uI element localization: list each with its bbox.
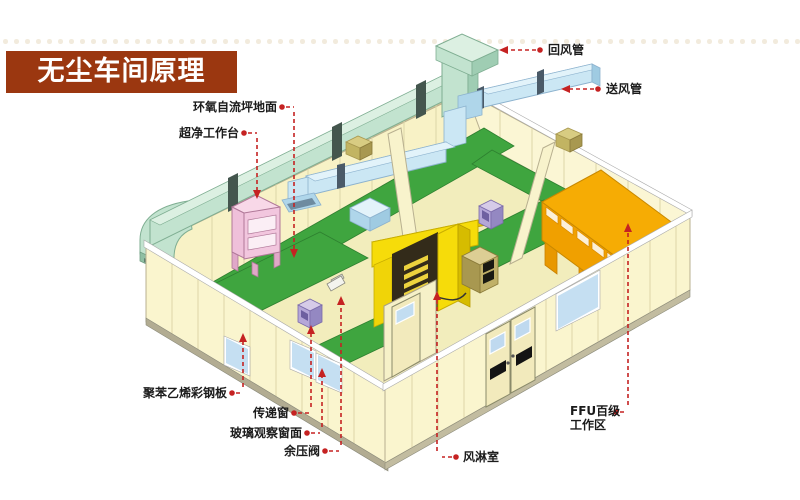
- label-return-duct: 回风管: [548, 42, 584, 57]
- storage-cabinet: [462, 247, 498, 293]
- duct-joint-band: [332, 122, 342, 161]
- label-glass-window: 玻璃观察窗面: [230, 425, 302, 440]
- label-ffu-line2: 工作区: [570, 417, 606, 432]
- cleanroom-principle-illustration: 无尘车间原理: [0, 0, 800, 500]
- pass-box-inner: [479, 200, 503, 229]
- label-clean-bench: 超净工作台: [178, 125, 239, 140]
- door-knob: [506, 361, 509, 364]
- cleanroom-diagram: 回风管 送风管 环氧自流坪地面 超净工作台 聚苯乙烯彩钢板 传递窗 玻璃观察窗面…: [0, 0, 800, 500]
- label-ffu-line1: FFU百级: [570, 403, 620, 418]
- transfer-window-box: [298, 299, 322, 328]
- label-transfer-window: 传递窗: [252, 405, 289, 420]
- duct-joint-band: [416, 80, 426, 119]
- label-air-shower: 风淋室: [463, 449, 499, 464]
- door-knob: [511, 354, 514, 357]
- label-steel-panel: 聚苯乙烯彩钢板: [142, 385, 228, 400]
- label-epoxy-floor: 环氧自流坪地面: [193, 99, 277, 114]
- label-supply-duct: 送风管: [605, 81, 642, 96]
- label-pressure-valve: 余压阀: [283, 443, 320, 458]
